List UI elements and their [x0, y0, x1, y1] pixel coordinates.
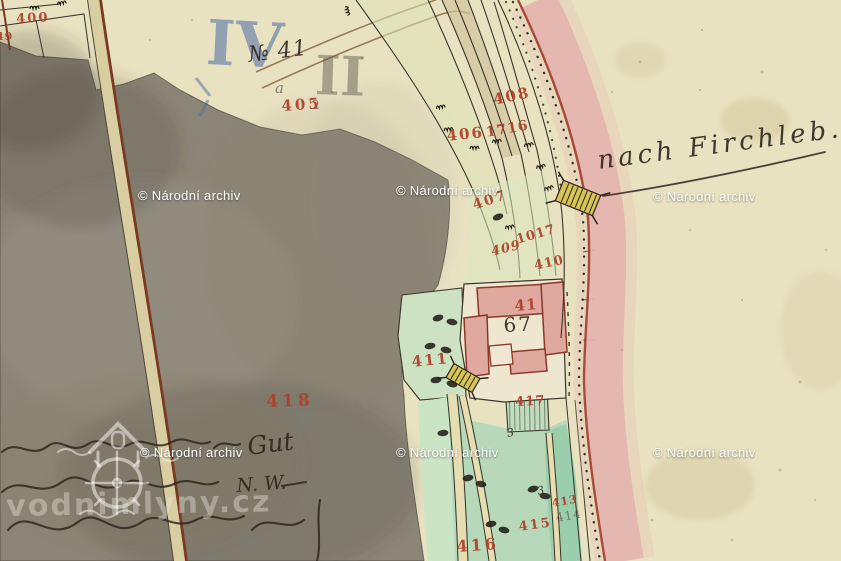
parcel-number-406: 406	[446, 125, 485, 144]
parcel-number-416: 416	[456, 536, 499, 555]
house-number-black: 67	[503, 313, 533, 335]
archive-watermark: © Národní archiv	[396, 184, 499, 197]
handwriting-word-gut: Gut	[246, 428, 295, 458]
archive-watermark: © Národní archiv	[140, 446, 243, 459]
parcel-number-405: 405	[281, 96, 322, 114]
pencil-section-mark: II	[314, 48, 366, 104]
cadastral-map-artwork	[0, 0, 841, 561]
map-viewport[interactable]: IV II № 41 a 2 400 49 405 408 406 1716 4…	[0, 0, 841, 561]
parcel-number-partial: 49	[0, 31, 13, 42]
archive-watermark: © Národní archiv	[396, 446, 499, 459]
pencil-letter: a	[275, 81, 284, 96]
parcel-number-417: 417	[515, 394, 546, 409]
parcel-number-400: 400	[16, 11, 50, 26]
parcel-number-418: 418	[266, 392, 314, 411]
archive-watermark: © Národní archiv	[653, 190, 756, 203]
archive-watermark: © Národní archiv	[653, 446, 756, 459]
parcel-number-411: 411	[411, 351, 450, 370]
mill-logo-watermark-text: vodnimlyny.cz	[6, 487, 272, 522]
archive-watermark: © Národní archiv	[138, 189, 241, 202]
